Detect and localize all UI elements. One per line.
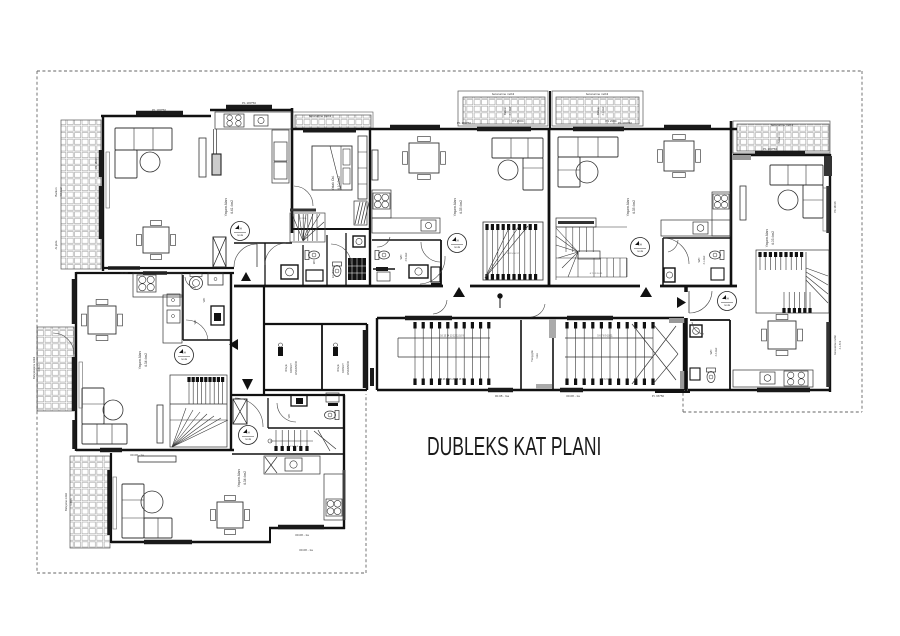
svg-text:KONUT: KONUT: [289, 363, 293, 373]
svg-text:1 2 3 4 5 6: 1 2 3 4 5 6: [288, 446, 299, 448]
svg-text:KONUT: KONUT: [341, 363, 345, 373]
svg-text:Yaşam Alanı: Yaşam Alanı: [626, 198, 630, 217]
svg-text:00.08 - Ga: 00.08 - Ga: [495, 394, 510, 398]
svg-text:4.35 öm2: 4.35 öm2: [459, 200, 463, 214]
svg-text:5 6 7 8 9 10 11: 5 6 7 8 9 10 11: [597, 336, 613, 338]
svg-text:betonarme möbil: betonarme möbil: [833, 335, 837, 355]
svg-text:no.da: no.da: [181, 358, 188, 361]
svg-text:no.da: no.da: [454, 246, 461, 249]
svg-text:DUBLEKS KAT PLANI: DUBLEKS KAT PLANI: [427, 432, 601, 461]
svg-text:4.1 öm2: 4.1 öm2: [509, 106, 512, 115]
svg-text:P1 180*50: P1 180*50: [152, 108, 166, 112]
svg-text:WC: WC: [399, 254, 403, 260]
svg-text:betonarme möbil: betonarme möbil: [309, 114, 332, 118]
svg-text:4.1 öm2: 4.1 öm2: [602, 106, 605, 115]
svg-text:1 2 3 4: 1 2 3 4: [300, 218, 307, 220]
svg-text:no.da: no.da: [637, 250, 644, 253]
svg-text:WC: WC: [193, 320, 197, 325]
svg-text:P1 180*50: P1 180*50: [618, 121, 632, 125]
svg-text:betonarme möbil: betonarme möbil: [771, 123, 794, 127]
svg-text:Balkon 4.1: Balkon 4.1: [778, 132, 781, 144]
svg-text:Yaşam Alanı: Yaşam Alanı: [138, 351, 142, 370]
svg-text:P1 180*50: P1 180*50: [457, 121, 471, 125]
svg-text:P1 2004: P1 2004: [605, 119, 617, 123]
svg-text:6 7 8 9 10 11: 6 7 8 9 10 11: [590, 273, 603, 275]
svg-text:Balkon: Balkon: [54, 187, 58, 197]
svg-text:16 15 14 13 12 11 10 9: 16 15 14 13 12 11 10 9: [440, 336, 464, 338]
svg-text:4.4 öm2: 4.4 öm2: [715, 347, 718, 356]
svg-text:24 23 22 21 20 19 18 17: 24 23 22 21 20 19 18 17: [440, 379, 466, 381]
svg-text:4 3 2 1: 4 3 2 1: [601, 379, 609, 381]
svg-text:ASANSÖR: ASANSÖR: [346, 361, 350, 375]
svg-text:Yatak Od.: Yatak Od.: [331, 176, 335, 191]
svg-text:Bahçeme möbil: Bahçeme möbil: [64, 493, 68, 511]
svg-text:4.34 öm2: 4.34 öm2: [243, 471, 247, 485]
svg-text:Yaşam Alanı: Yaşam Alanı: [224, 198, 228, 217]
svg-text:Yaşam Alanı: Yaşam Alanı: [453, 198, 457, 217]
svg-text:Pb 18018: Pb 18018: [94, 157, 98, 169]
svg-text:WC: WC: [312, 260, 316, 264]
svg-text:Bahçekapımı möbil: Bahçekapımı möbil: [32, 357, 36, 379]
svg-text:4.10.0m2: 4.10.0m2: [337, 176, 341, 190]
svg-text:Balkon: Balkon: [596, 106, 600, 114]
svg-text:P1 180*50: P1 180*50: [763, 147, 777, 151]
svg-text:00.08 - 1a: 00.08 - 1a: [295, 533, 309, 537]
svg-text:Yaşam Alanı: Yaşam Alanı: [237, 469, 241, 488]
svg-text:P1 2004: P1 2004: [512, 119, 524, 123]
svg-text:P1 180*50: P1 180*50: [242, 101, 256, 105]
svg-text:W.Açık: W.Açık: [337, 363, 340, 371]
svg-text:00.08 - 1a: 00.08 - 1a: [299, 548, 313, 552]
svg-text:no.da: no.da: [245, 438, 252, 441]
svg-text:Pl. 66*50: Pl. 66*50: [652, 394, 665, 398]
svg-text:4.41 öm2: 4.41 öm2: [230, 200, 234, 214]
svg-text:00.08: 00.08: [120, 271, 128, 275]
svg-text:WC: WC: [202, 298, 206, 303]
svg-text:00.08 - 1a: 00.08 - 1a: [130, 453, 144, 457]
svg-text:Etv.Banyo: Etv.Banyo: [331, 266, 335, 278]
svg-text:Al gkda: Al gkda: [54, 240, 58, 249]
svg-text:4.34 öm2: 4.34 öm2: [144, 353, 148, 367]
svg-text:Balkon: Balkon: [503, 106, 507, 114]
svg-text:Yaşam Alanı: Yaşam Alanı: [765, 229, 769, 248]
svg-text:WC: WC: [287, 414, 291, 419]
svg-text:14 15 16 17: 14 15 16 17: [507, 253, 519, 255]
svg-text:betonarme möbil: betonarme möbil: [492, 92, 515, 96]
svg-text:4.1-B=2: 4.1-B=2: [839, 340, 842, 349]
svg-text:W.Açık: W.Açık: [285, 363, 288, 371]
svg-text:WC: WC: [697, 257, 701, 263]
svg-text:4.5 öm2: 4.5 öm2: [405, 252, 408, 261]
svg-text:betonarme möbil: betonarme möbil: [586, 92, 609, 96]
svg-text:Yang.gök: Yang.gök: [530, 350, 534, 362]
svg-text:4.1 öm2: 4.1 öm2: [703, 255, 706, 264]
svg-text:holü: holü: [535, 353, 539, 359]
svg-text:00.08 - 1a: 00.08 - 1a: [566, 394, 580, 398]
svg-text:4.6 öm2: 4.6 öm2: [59, 187, 63, 197]
svg-text:4.05 m: 4.05 m: [38, 364, 41, 371]
svg-text:ASANSÖR: ASANSÖR: [294, 361, 298, 375]
svg-text:no.da: no.da: [724, 304, 731, 307]
svg-text:WC: WC: [709, 349, 713, 355]
svg-text:4.05 m: 4.05 m: [70, 498, 73, 505]
svg-text:4.35 öm2: 4.35 öm2: [632, 200, 636, 214]
svg-text:no.da: no.da: [237, 234, 244, 237]
svg-text:4.03 öm2: 4.03 öm2: [771, 231, 775, 245]
svg-text:Pb 16016: Pb 16016: [833, 201, 837, 213]
